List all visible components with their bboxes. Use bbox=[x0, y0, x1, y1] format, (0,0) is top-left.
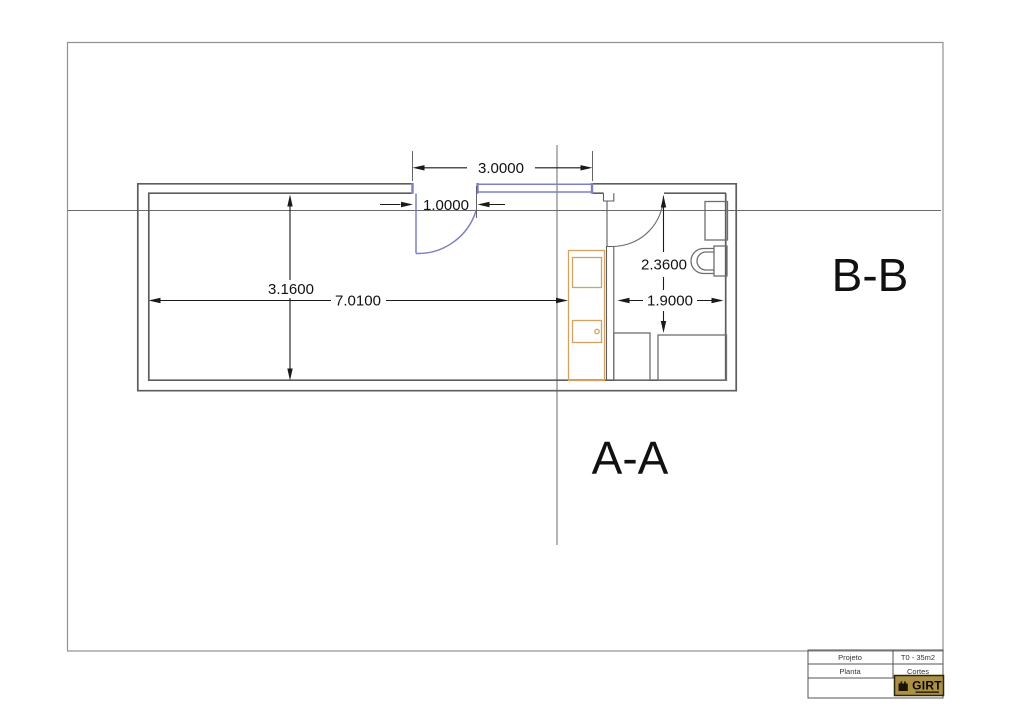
dimension-bath-width: 1.9000 bbox=[618, 293, 724, 310]
inner-walls bbox=[148, 193, 727, 381]
dimension-top-span: 3.0000 bbox=[413, 151, 593, 181]
kitchen-appliance-top bbox=[573, 258, 602, 288]
outer-walls bbox=[137, 183, 737, 392]
washbasin-counter bbox=[705, 202, 728, 241]
arrowhead-top bbox=[661, 196, 666, 208]
shower-tray-left bbox=[614, 333, 650, 380]
arrowhead-right bbox=[478, 202, 490, 207]
arrowhead-bottom bbox=[661, 321, 666, 333]
title-block: Projeto T0 - 35m2 Planta Cortes GIRT bbox=[808, 650, 944, 698]
dimension-interior-width: 7.0100 bbox=[149, 293, 569, 310]
arrowhead-right bbox=[581, 165, 593, 170]
toilet-bowl-inner bbox=[697, 252, 714, 270]
title-row2-label: Planta bbox=[839, 667, 861, 676]
section-label-b-b: B-B bbox=[832, 249, 909, 301]
kitchen-counter bbox=[569, 251, 605, 381]
dim-interior-depth-text: 3.1600 bbox=[268, 281, 314, 298]
appliance-knob bbox=[595, 329, 599, 333]
section-label-a-a: A-A bbox=[592, 432, 669, 484]
window-wall-lines bbox=[478, 184, 593, 192]
dimension-entry-door: 1.0000 bbox=[380, 197, 505, 214]
floor-plan bbox=[137, 183, 737, 392]
title-row1-label: Projeto bbox=[838, 653, 862, 662]
arrowhead-top bbox=[287, 195, 292, 207]
cad-sheet: 3.0000 1.0000 3.1600 7.0100 2.3600 1.900… bbox=[0, 0, 1024, 724]
logo-fine-print bbox=[916, 692, 940, 693]
drawing-frame bbox=[68, 43, 944, 652]
dim-bath-depth-text: 2.3600 bbox=[641, 257, 687, 274]
bathroom-partition-wall bbox=[607, 246, 614, 380]
dimension-bath-depth: 2.3600 bbox=[641, 196, 687, 334]
dim-top-span-text: 3.0000 bbox=[478, 160, 524, 177]
arrowhead-left bbox=[413, 165, 425, 170]
bathroom-fixtures bbox=[614, 202, 728, 381]
dim-bath-width-text: 1.9000 bbox=[647, 293, 693, 310]
title-row2-value: Cortes bbox=[907, 667, 929, 676]
bathroom-door-swing-arc bbox=[613, 196, 664, 247]
girt-logo: GIRT bbox=[895, 676, 944, 696]
bathroom-wall-stub bbox=[604, 193, 614, 201]
kitchen-appliance-bottom bbox=[573, 321, 602, 343]
arrowhead-right bbox=[556, 298, 568, 303]
dim-interior-width-text: 7.0100 bbox=[335, 293, 381, 310]
dimension-interior-depth: 3.1600 bbox=[268, 195, 314, 381]
entry-door-swing-arc bbox=[416, 211, 476, 254]
logo-text: GIRT bbox=[912, 679, 942, 693]
dim-entry-door-text: 1.0000 bbox=[423, 197, 469, 214]
arrowhead-right bbox=[712, 298, 724, 303]
arrowhead-left bbox=[401, 202, 413, 207]
arrowhead-bottom bbox=[287, 369, 292, 381]
arrowhead-left bbox=[149, 298, 161, 303]
shower-tray-right bbox=[658, 335, 727, 380]
kitchen-unit bbox=[569, 251, 605, 381]
title-row1-value: T0 - 35m2 bbox=[901, 653, 935, 662]
arrowhead-left bbox=[618, 298, 630, 303]
